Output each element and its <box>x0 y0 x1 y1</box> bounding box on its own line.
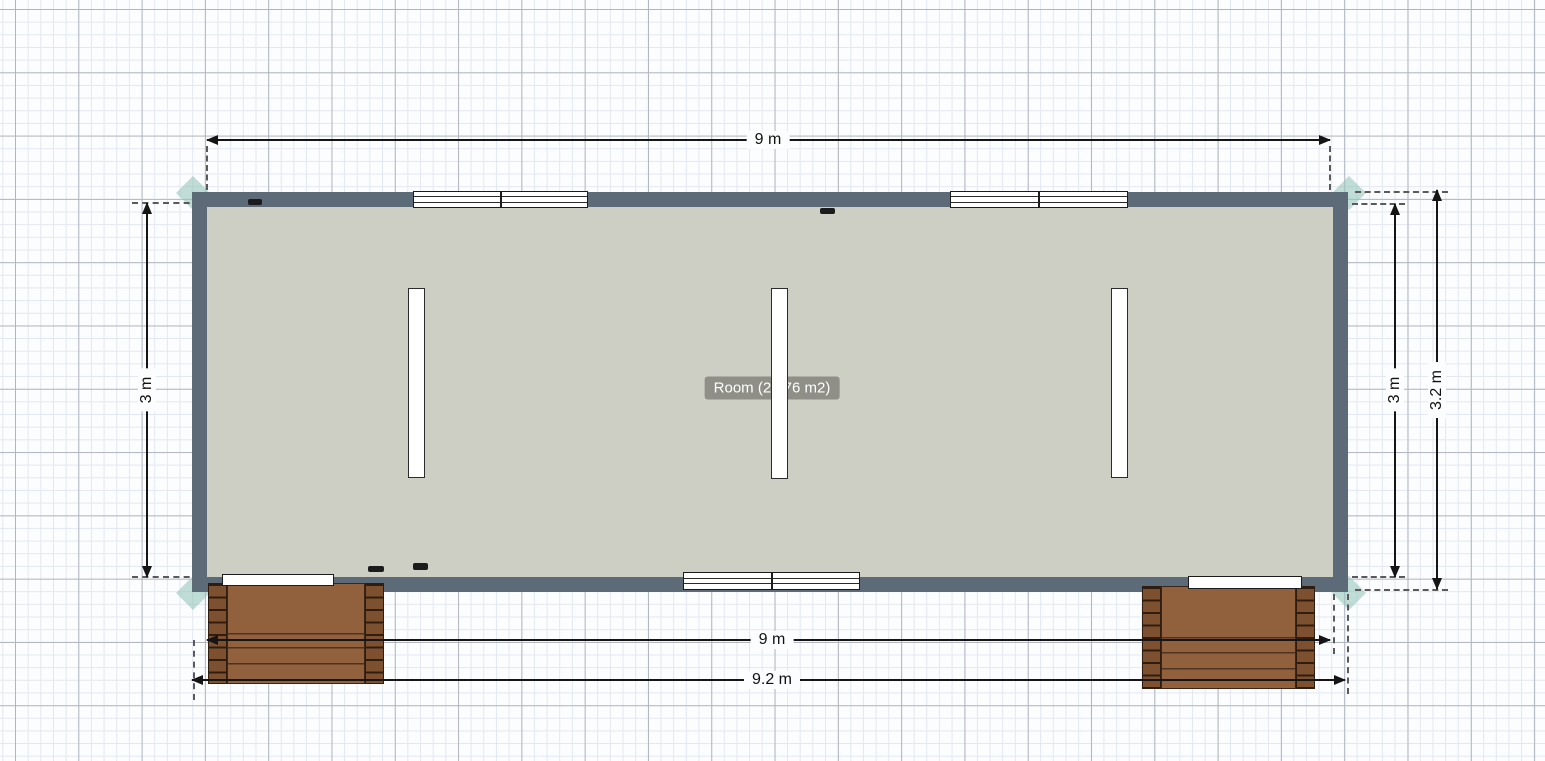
window-pane <box>683 572 772 590</box>
deck[interactable] <box>208 583 384 684</box>
window-pane <box>950 191 1039 208</box>
dimension-bottom-outer-label: 9.2 m <box>744 671 800 689</box>
extension-line <box>1329 146 1331 190</box>
extension-line <box>206 146 208 190</box>
window-pane <box>501 191 589 208</box>
outlet-mark[interactable] <box>248 199 262 205</box>
extension-line <box>1347 594 1349 694</box>
wall-panel[interactable] <box>771 288 788 479</box>
deck-planks <box>1161 586 1296 689</box>
deck-planks <box>227 583 365 684</box>
deck[interactable] <box>1142 586 1315 689</box>
dimension-top-label: 9 m <box>747 131 790 149</box>
extension-line <box>193 640 195 700</box>
deck-rail <box>1142 586 1161 689</box>
window[interactable] <box>950 191 1128 208</box>
outlet-mark[interactable] <box>820 208 835 214</box>
wall-panel[interactable] <box>1111 288 1128 478</box>
outlet-mark[interactable] <box>368 566 384 572</box>
deck-rail <box>208 583 227 684</box>
extension-line <box>1333 594 1335 654</box>
deck-rail <box>1296 586 1315 689</box>
window[interactable] <box>413 191 588 208</box>
deck-rail <box>365 583 384 684</box>
door[interactable] <box>1188 576 1302 589</box>
dimension-bottom-inner-label: 9 m <box>751 631 794 649</box>
outlet-mark[interactable] <box>413 563 428 570</box>
window-pane <box>1039 191 1128 208</box>
dimension-right-outer-label: 3.2 m <box>1428 362 1446 418</box>
window[interactable] <box>683 572 860 590</box>
wall-panel[interactable] <box>408 288 425 478</box>
door[interactable] <box>222 574 334 586</box>
dimension-right-inner-label: 3 m <box>1386 369 1404 412</box>
window-pane <box>772 572 861 590</box>
dimension-left-label: 3 m <box>138 369 156 412</box>
floor-plan-canvas[interactable]: Room (26.76 m2) 9 m 3 m 3 m <box>0 0 1545 761</box>
window-pane <box>413 191 501 208</box>
